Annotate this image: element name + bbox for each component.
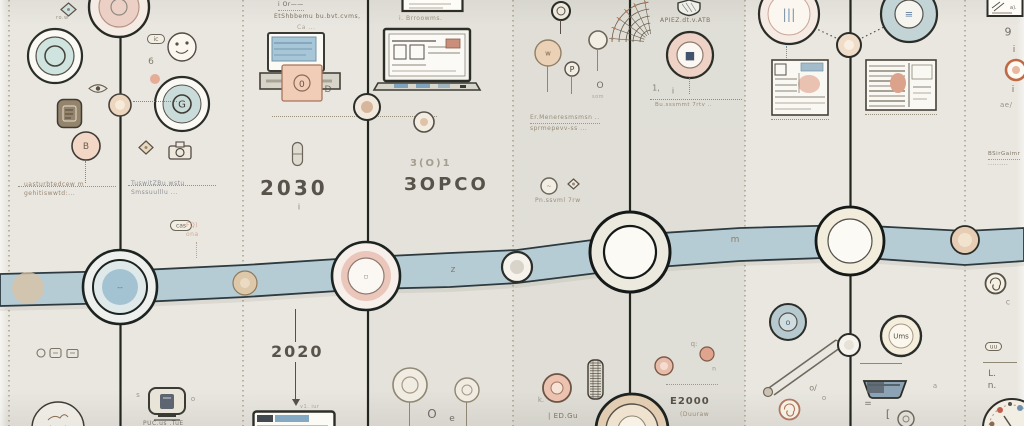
- section4-caption-scribble: Er.Meneresmsmsn ..sprmepevv-ss ...: [530, 113, 600, 133]
- node-dotted-connector: [133, 101, 177, 102]
- ribbon-node-beige: [230, 268, 260, 298]
- s7-rule: [860, 363, 902, 364]
- pink-b-stem: [85, 161, 86, 183]
- omura-scribble-line: (Duuraw: [680, 410, 709, 419]
- timeline-illustration: ro.wic6GBuasturbtedcew mgehitiswwtd:...T…: [0, 0, 1024, 426]
- pink-dot-1: [652, 354, 676, 378]
- beige-node-stem: [547, 66, 548, 92]
- caption-right-rule: [128, 185, 216, 186]
- omura-scribble: (Duuraw: [680, 410, 709, 419]
- line-node-small: [106, 91, 134, 119]
- paper-caption-scribble-line: i. Brroowms.: [399, 14, 442, 23]
- ring-node-small-stem: [597, 49, 598, 71]
- caption-left-scribble-line: uasturbtedcew m: [24, 180, 84, 189]
- svg-text:Ums: Ums: [893, 332, 909, 340]
- gem-caption-scribble: ro.w: [56, 15, 69, 23]
- gauge-circle-top: ≡: [878, 0, 940, 45]
- s8-caption-scribble-line: .........: [988, 160, 1020, 168]
- svg-text:~: ~: [546, 183, 551, 190]
- svg-text:▫: ▫: [364, 272, 369, 280]
- s5-caption-scribble-line: Bu.sssmmt 7rtv ..: [655, 101, 712, 109]
- svg-text:--: --: [117, 283, 123, 292]
- ribbon-squiggle-2: z: [451, 265, 456, 275]
- d-glyph: D: [325, 85, 332, 95]
- svg-text:ic: ic: [154, 36, 159, 43]
- s5-rule-dotted: [650, 99, 742, 100]
- ribbon-node-main-3: [587, 209, 673, 295]
- smiley-circle: [166, 31, 198, 63]
- code-label-3o1: 3(O)1: [410, 158, 452, 169]
- ribbon-node-main-4: [813, 204, 887, 278]
- ied-scribble: | ED.Gu: [548, 411, 578, 422]
- lollipop-small-stem: [466, 402, 467, 426]
- arrowhead-icon: [292, 399, 300, 406]
- mini-card-icon: a).: [986, 0, 1024, 17]
- pink-dot-2: [697, 344, 717, 364]
- zero-ring: [1003, 57, 1024, 83]
- svg-text:P: P: [570, 65, 575, 74]
- faded-doodle-scribble-line: FQ): [186, 221, 199, 230]
- target-circle: ■: [664, 29, 716, 81]
- table-card-icon: [865, 59, 937, 111]
- tiny-o-glyph: o: [822, 394, 826, 402]
- bottom-caption-s4: Pn.ssvml 7rw: [535, 196, 581, 205]
- year-label-zorco: ЗОРСО: [404, 174, 489, 195]
- svg-text:a).: a).: [1010, 5, 1017, 11]
- browser-window-icon: [252, 410, 336, 426]
- caption-left-scribble: uasturbtedcew mgehitiswwtd:...: [24, 180, 84, 198]
- doc-card-icon: [771, 59, 829, 116]
- nine-glyph: 9: [1005, 26, 1012, 39]
- bottom-diamond-s4: [567, 178, 580, 190]
- tick-above-zero: i: [1013, 45, 1016, 55]
- paper-card-icon: [401, 0, 464, 12]
- ribbon-node-small-8: [948, 223, 982, 257]
- svg-text:|||: |||: [782, 8, 795, 23]
- equals-glyph: =: [864, 399, 872, 409]
- pencil-icon: [762, 334, 846, 396]
- monitor-caption-scribble: PUC.us .TuE: [143, 419, 184, 426]
- spiral-badge-2: [984, 272, 1007, 295]
- svg-text:B: B: [83, 142, 89, 152]
- year-label-2030: 2030: [260, 176, 328, 200]
- faded-doodle-scribble-line: ona: [186, 230, 199, 239]
- diamond-outline-icon: [138, 140, 154, 155]
- ribbon-node-faded: [11, 271, 45, 305]
- header-underline-scribble-line: i Or——: [278, 0, 304, 11]
- svg-text:uu: uu: [990, 344, 998, 351]
- s8-caption-scribble: BSirGaimr.........: [988, 150, 1020, 169]
- caption-left-scribble-line: gehitiswwtd:...: [24, 189, 84, 198]
- bottom-node-main: △: [593, 391, 671, 426]
- tick-2: i: [672, 87, 674, 96]
- year-label-2020: 2020: [271, 342, 324, 361]
- p-badge-stem: [571, 76, 572, 94]
- ribbon-node-main-2: ▫: [329, 239, 403, 313]
- monitor-caption-scribble-line: PUC.us .TuE: [143, 419, 184, 426]
- ring-glyph: [895, 408, 917, 426]
- s8-caption-scribble-line: BSirGaimr: [988, 150, 1020, 160]
- monitor-side-glyph-2: o: [191, 395, 195, 403]
- teal-badge-circle: [25, 26, 85, 86]
- tick-below-zero: i: [1012, 85, 1015, 95]
- ribbon-node-small-3: [499, 249, 535, 285]
- doc-card-rule: [771, 119, 829, 120]
- shield-caption-scribble: APIEZ.dt.v.ATB: [660, 16, 711, 25]
- target-stem: [689, 78, 690, 94]
- monitor-side-glyph: s: [136, 391, 140, 399]
- som-scribble: som: [592, 94, 604, 102]
- som-scribble-line: som: [592, 94, 604, 102]
- table-card-rule: [865, 114, 937, 115]
- faded-doodle-scribble: FQ)ona: [186, 221, 199, 239]
- blue-badge-circle: G: [152, 74, 212, 134]
- ums-badge-circle: Ums: [878, 313, 924, 359]
- pill-badge-s8: uu: [985, 342, 1002, 351]
- caption-right-scribble: TuswitZBu wstuSmssuulllu ...: [131, 179, 185, 197]
- s5-caption-scribble: Bu.sssmmt 7rtv ..: [655, 101, 712, 109]
- pink-ring-bottom: [540, 371, 574, 405]
- c-glyph: c: [1006, 298, 1010, 307]
- clock-icon: [980, 396, 1024, 426]
- svg-text:G: G: [178, 100, 186, 111]
- capsule-icon: [291, 141, 304, 167]
- header-scribble: EtShbbemu bu.bvt.cvms,: [274, 12, 360, 21]
- ea000-label: E2000: [670, 396, 710, 407]
- caption-right-scribble-line: Smssuulllu ...: [131, 188, 185, 197]
- arrow-stem-below-2020: [295, 362, 296, 400]
- header-scribble-line: EtShbbemu bu.bvt.cvms,: [274, 12, 360, 21]
- icons-row: [36, 346, 80, 359]
- svg-text:cas: cas: [176, 223, 186, 230]
- six-glyph: 6: [148, 57, 154, 67]
- tray-icon: [860, 376, 910, 401]
- sketch-circle-top: |||: [756, 0, 822, 47]
- lollipop-small: [452, 375, 482, 405]
- camera-icon: [168, 141, 192, 160]
- o-glyph: O: [427, 407, 436, 421]
- lollipop-large-stem: [409, 402, 410, 426]
- laptop-icon: [376, 27, 478, 93]
- svg-text:≡: ≡: [905, 10, 913, 21]
- shield-caption-scribble-line: APIEZ.dt.v.ATB: [660, 16, 711, 25]
- svg-text:o: o: [786, 318, 791, 327]
- s5-dash-rule: [666, 384, 718, 385]
- small-o-node: [411, 109, 437, 135]
- header-underline-scribble: i Or——: [278, 0, 304, 11]
- s8-rule: [983, 362, 1017, 363]
- stem-above-2020: [295, 309, 296, 342]
- caption-left-rule: [18, 186, 116, 187]
- tick-1: 1,: [652, 84, 660, 93]
- gem-caption-scribble-line: ro.w: [56, 15, 69, 23]
- line-node-7: [835, 331, 863, 359]
- ribbon-node-main-1: --: [80, 247, 160, 327]
- section4-caption-scribble-line: Er.Meneresmsmsn ..: [530, 113, 600, 124]
- n-glyph-2: n.: [988, 381, 997, 391]
- caption-right-scribble-line: TuswitZBu wstu: [131, 179, 185, 188]
- tick-below-2030: i: [298, 203, 300, 212]
- pink-b-circle: B: [69, 129, 103, 163]
- monitor-icon: [146, 386, 188, 422]
- q-glyph: q:: [691, 340, 698, 348]
- ae-scribble-line: ae/: [1000, 100, 1012, 111]
- ied-scribble-line: | ED.Gu: [548, 411, 578, 422]
- svg-text:■: ■: [685, 49, 695, 62]
- beige-node: w: [532, 37, 564, 69]
- small-o-glyph: O: [596, 81, 603, 91]
- bottom-caption-s4-line: Pn.ssvml 7rw: [535, 196, 581, 205]
- sketch-circle: [30, 398, 88, 426]
- ae-scribble: ae/: [1000, 100, 1012, 111]
- n-glyph: n: [712, 366, 716, 373]
- svg-text:w: w: [545, 49, 551, 57]
- bracket-glyph: [: [886, 408, 890, 421]
- tiny-a-glyph: a: [933, 382, 937, 390]
- lollipop-large: [390, 365, 430, 405]
- top-node-circle: [86, 0, 152, 40]
- e-glyph: e: [449, 414, 455, 424]
- line-node-2: [351, 91, 383, 123]
- bottom-ring-s4: ~: [538, 175, 560, 197]
- svg-text:0: 0: [299, 80, 305, 90]
- mini-node-dark-stem: [560, 20, 561, 34]
- section4-caption-scribble-line: sprmepevv-ss ...: [530, 124, 600, 133]
- ribbon-squiggle-node: m: [731, 235, 740, 245]
- faded-doodle-stem: [196, 242, 197, 258]
- junction-node: [834, 30, 864, 60]
- spiral-badge: [778, 398, 801, 421]
- eye-icon: [88, 82, 108, 95]
- brown-cube-icon: [56, 98, 83, 129]
- k-glyph: k.: [538, 396, 544, 404]
- o-slash-glyph: o/: [809, 384, 817, 393]
- paper-caption-scribble: i. Brroowms.: [399, 14, 442, 23]
- L-glyph: L.: [988, 369, 996, 379]
- shield-icon: [676, 0, 702, 15]
